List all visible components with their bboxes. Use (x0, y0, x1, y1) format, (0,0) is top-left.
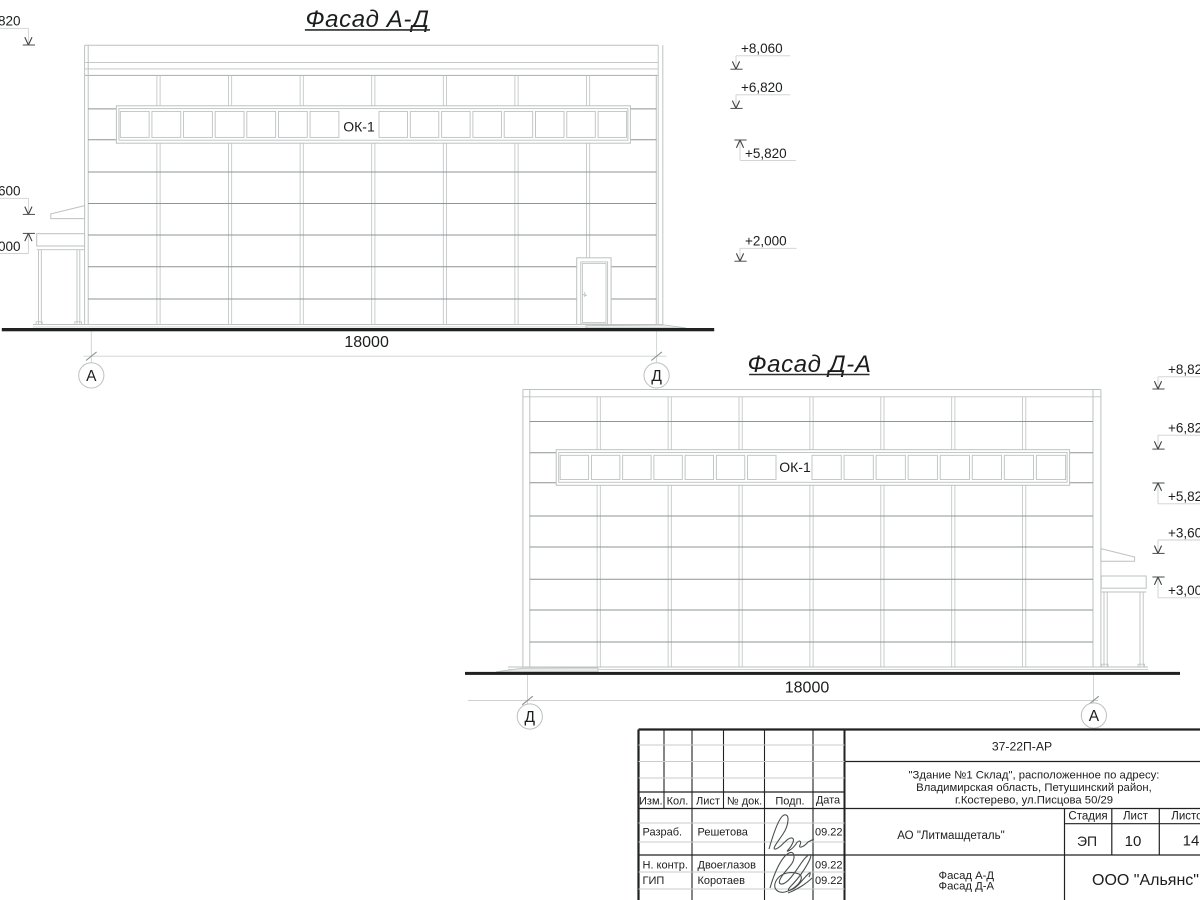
svg-text:10: 10 (1125, 833, 1142, 850)
svg-text:Двоеглазов: Двоеглазов (698, 860, 757, 872)
svg-text:+3,000: +3,000 (1168, 583, 1200, 598)
svg-text:Фасад Д-А: Фасад Д-А (939, 881, 995, 893)
svg-text:ГИП: ГИП (643, 875, 665, 887)
svg-text:Дата: Дата (816, 795, 841, 807)
svg-text:Д: Д (525, 709, 536, 726)
svg-text:А: А (1089, 708, 1100, 725)
svg-text:+8,820: +8,820 (1168, 362, 1200, 377)
svg-text:+5,820: +5,820 (745, 146, 787, 161)
svg-text:+6,820: +6,820 (741, 80, 783, 95)
svg-text:18000: 18000 (785, 680, 830, 697)
svg-text:+3,600: +3,600 (1168, 525, 1200, 540)
svg-text:+3,600: +3,600 (0, 184, 21, 199)
svg-text:Стадия: Стадия (1068, 810, 1107, 822)
svg-text:+8,820: +8,820 (0, 14, 21, 29)
svg-text:№ док.: № док. (727, 796, 762, 808)
svg-text:+6,820: +6,820 (1168, 421, 1200, 436)
svg-text:Лист: Лист (1123, 810, 1149, 822)
svg-text:ОК-1: ОК-1 (779, 459, 811, 475)
svg-text:Подп.: Подп. (775, 796, 804, 808)
svg-text:ОК-1: ОК-1 (343, 119, 375, 135)
svg-text:14: 14 (1183, 832, 1200, 849)
svg-text:Кол.: Кол. (667, 796, 689, 808)
svg-text:Листов: Листов (1171, 810, 1200, 822)
svg-text:ООО "Альянс": ООО "Альянс" (1092, 872, 1199, 889)
svg-text:Решетова: Решетова (698, 827, 749, 839)
svg-text:А: А (86, 368, 97, 385)
svg-text:Коротаев: Коротаев (698, 875, 746, 887)
svg-text:+8,060: +8,060 (741, 41, 783, 56)
svg-text:ЭП: ЭП (1077, 833, 1097, 849)
svg-text:Разраб.: Разраб. (643, 827, 683, 839)
svg-text:АО "Литмашдеталь": АО "Литмашдеталь" (897, 830, 1004, 842)
svg-text:Н. контр.: Н. контр. (643, 860, 688, 872)
svg-text:г.Костерево, ул.Писцова 50/29: г.Костерево, ул.Писцова 50/29 (955, 794, 1113, 806)
svg-text:18000: 18000 (344, 334, 389, 351)
svg-text:+3,000: +3,000 (0, 239, 21, 254)
svg-text:Д: Д (651, 368, 662, 385)
svg-text:Владимирская область, Петушинс: Владимирская область, Петушинский район, (916, 782, 1152, 794)
svg-text:09.22: 09.22 (815, 827, 843, 839)
svg-text:+2,000: +2,000 (745, 234, 787, 249)
svg-text:+5,820: +5,820 (1168, 489, 1200, 504)
svg-text:09.22: 09.22 (815, 875, 843, 887)
svg-text:09.22: 09.22 (815, 860, 843, 872)
svg-text:Изм.: Изм. (639, 796, 663, 808)
svg-text:37-22П-АР: 37-22П-АР (992, 740, 1052, 754)
svg-text:"Здание №1 Склад", расположенн: "Здание №1 Склад", расположенное по адре… (909, 769, 1160, 781)
svg-text:Лист: Лист (696, 796, 720, 808)
